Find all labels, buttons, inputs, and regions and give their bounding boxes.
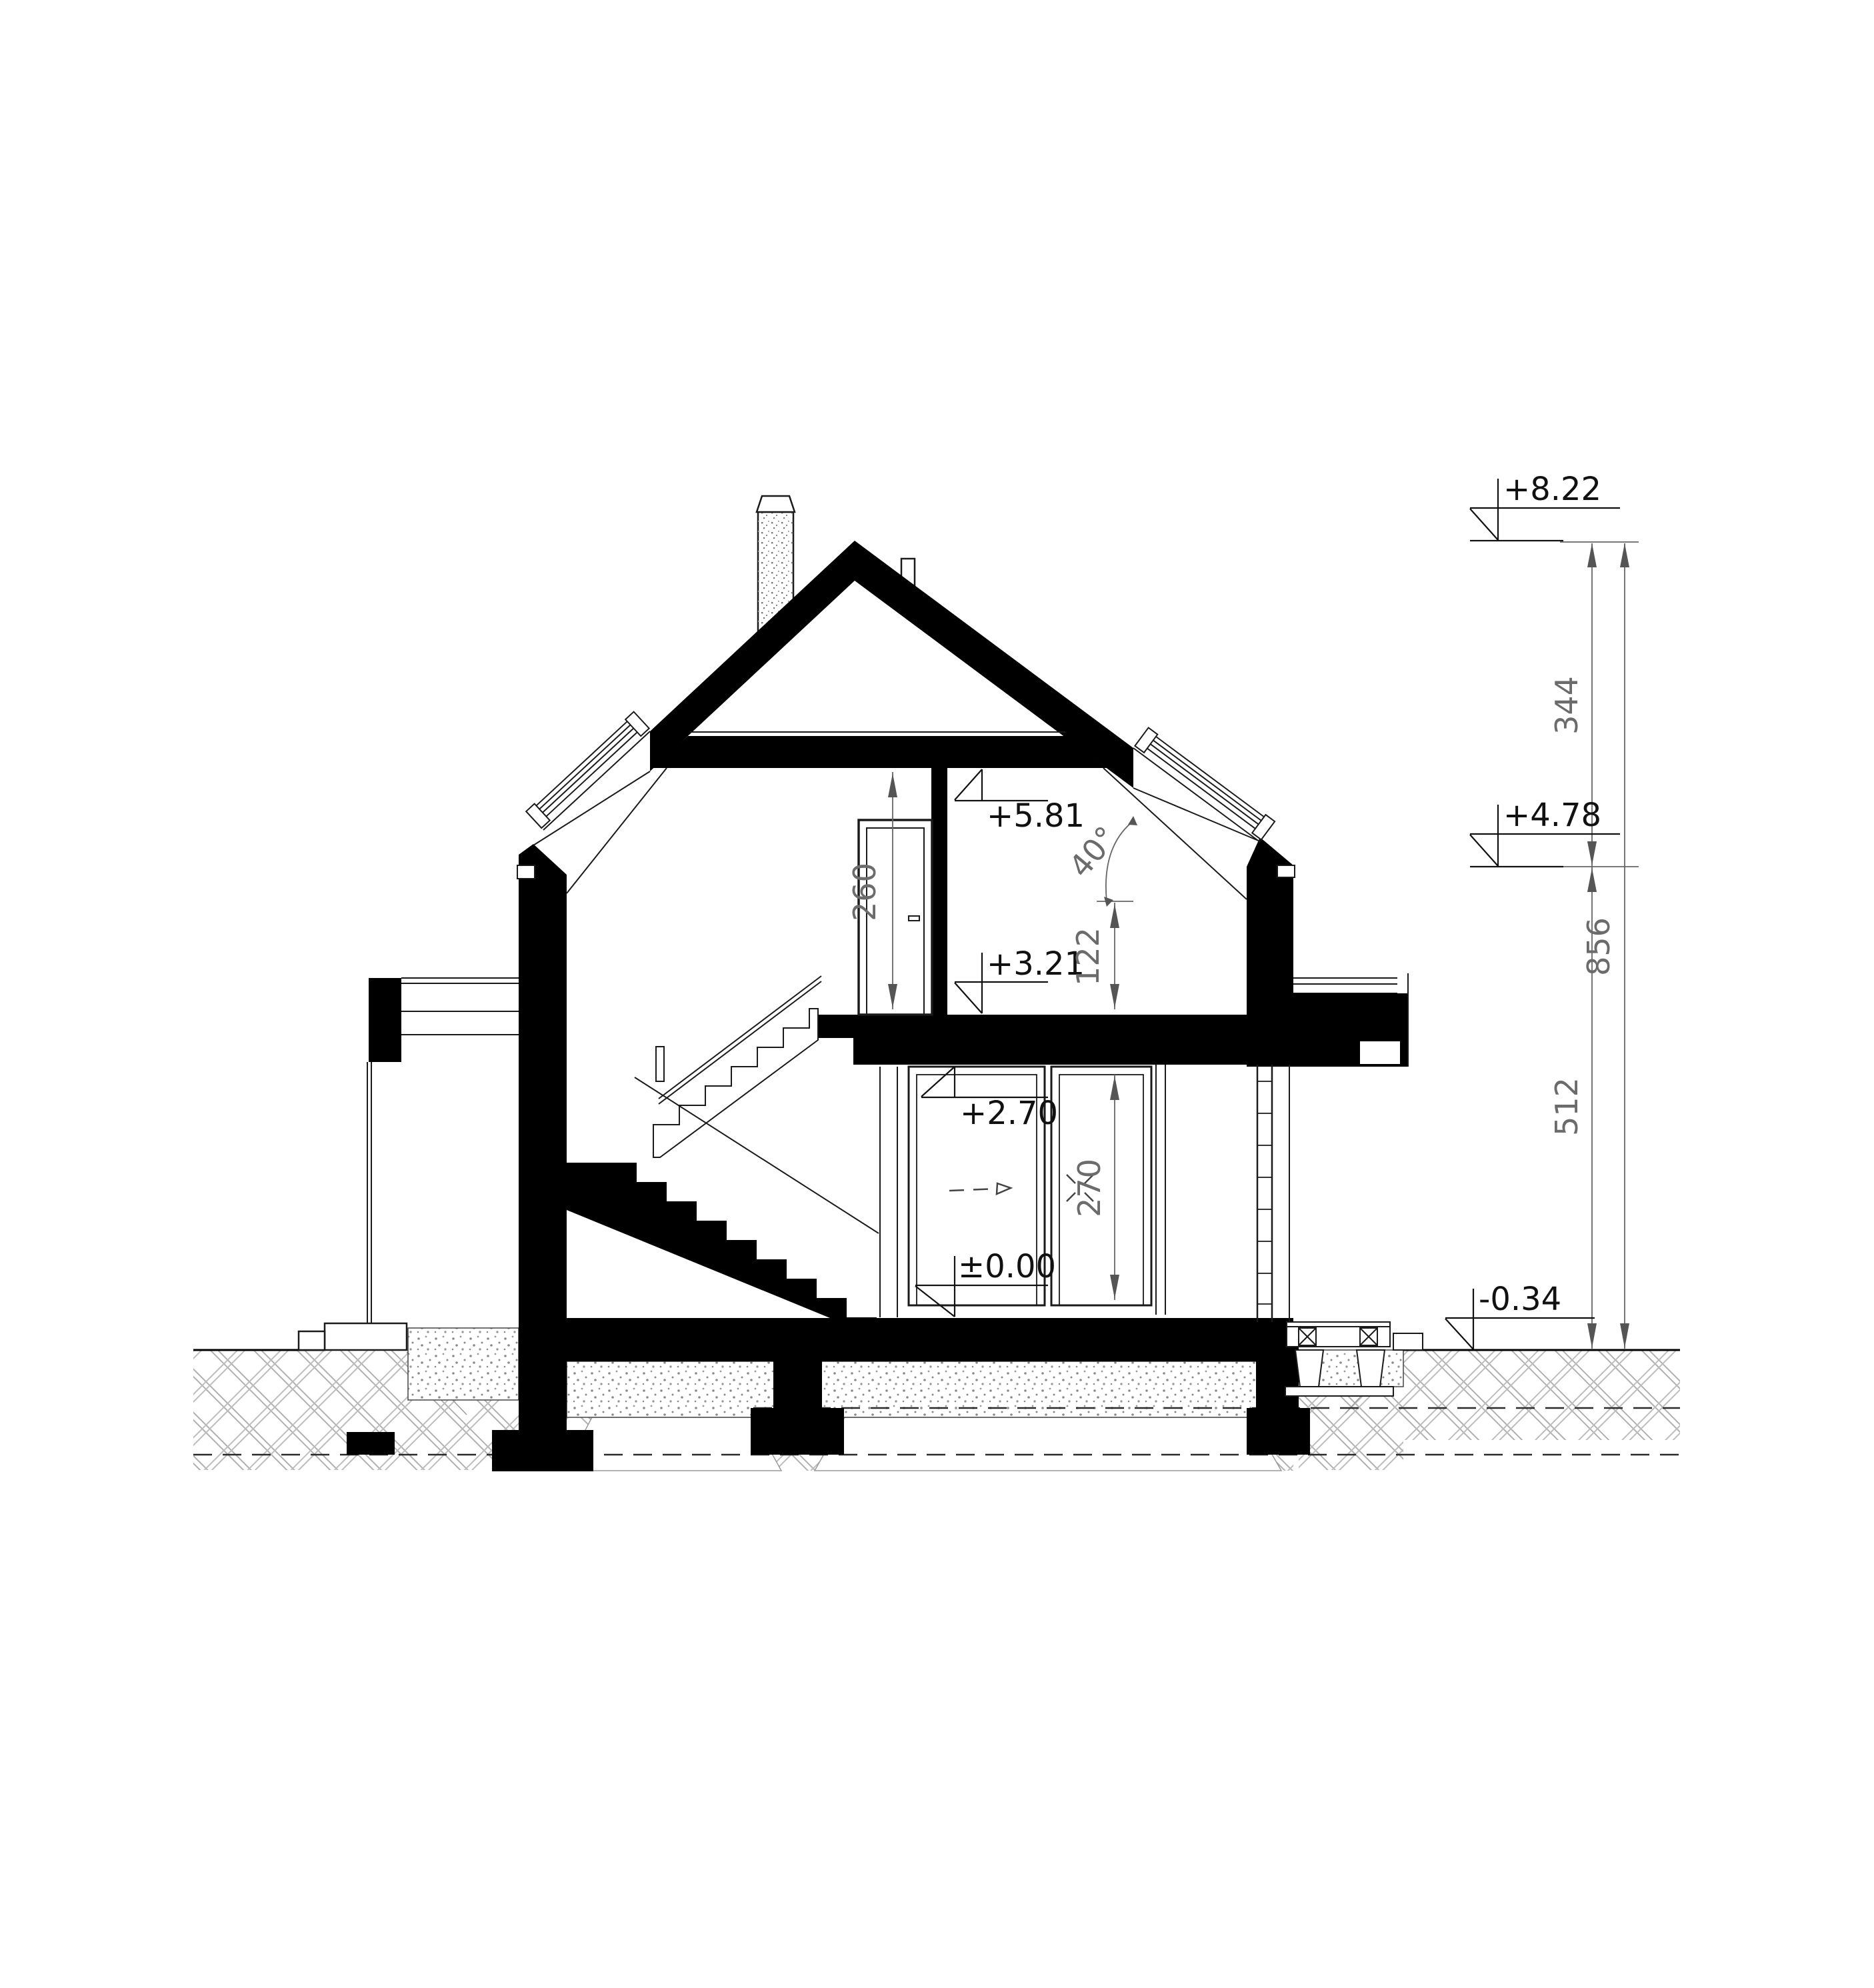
pad-footing (1295, 1350, 1323, 1387)
footing-left (492, 1430, 593, 1471)
stair-upper-flight (653, 1009, 818, 1157)
ground-floor-slab (519, 1318, 1293, 1361)
pad-footing (1357, 1350, 1385, 1387)
left-wall (519, 844, 567, 1430)
view-direction-arrow (949, 1183, 1011, 1194)
roof (526, 541, 1275, 899)
dim-lower-zone: 512 (1549, 1077, 1585, 1136)
stair-lower-flight (567, 1163, 877, 1318)
collar-beam (652, 736, 1107, 768)
porch-step (299, 1331, 325, 1350)
door-handle (909, 916, 919, 921)
chimney-cap (757, 496, 795, 512)
dim-attic-clear: 260 (847, 863, 883, 921)
excavation-pit-right (815, 1417, 1281, 1471)
level-attic-ceiling-label: +5.81 (987, 797, 1085, 835)
level-eaves-label: +4.78 (1503, 797, 1601, 834)
newel-post (656, 1047, 664, 1081)
footing-right (1247, 1408, 1310, 1455)
dim-knee-wall: 122 (1070, 927, 1106, 986)
foundation-wall-mid (773, 1361, 822, 1411)
level-ground-ceiling-label: +2.70 (960, 1095, 1058, 1132)
dim-overall: 856 (1581, 917, 1617, 976)
level-terrain-label: -0.34 (1479, 1281, 1561, 1318)
attic-partition-wall (931, 768, 947, 1016)
terrace-step (1393, 1333, 1423, 1350)
attic-floor-slab (818, 1015, 1293, 1038)
level-ridge-label: +8.22 (1503, 471, 1601, 508)
section-drawing: +8.22 +4.78 -0.34 +5.81 +3.21 +2.70 ±0.0… (0, 0, 1874, 1988)
dim-ground-clear: 270 (1071, 1159, 1107, 1217)
dim-roof-zone: 344 (1549, 676, 1585, 735)
excavation-pit-left (564, 1417, 781, 1471)
porch-post-footing (347, 1432, 395, 1455)
skylight-right (1135, 727, 1275, 839)
marker-attic-ceiling (955, 769, 1048, 801)
architectural-section-sheet: +8.22 +4.78 -0.34 +5.81 +3.21 +2.70 ±0.0… (0, 0, 1874, 1988)
porch-slab (325, 1323, 407, 1350)
footing-mid (751, 1408, 844, 1455)
right-wall-plate (1277, 865, 1295, 877)
ground-ceiling-band (853, 1038, 1293, 1065)
marker-ground-ceiling (921, 1067, 1048, 1097)
terrace-canopy (1278, 973, 1408, 1067)
level-ground-floor-label: ±0.00 (958, 1248, 1056, 1285)
porch-beam (369, 978, 401, 1062)
left-wall-plate (517, 865, 535, 879)
